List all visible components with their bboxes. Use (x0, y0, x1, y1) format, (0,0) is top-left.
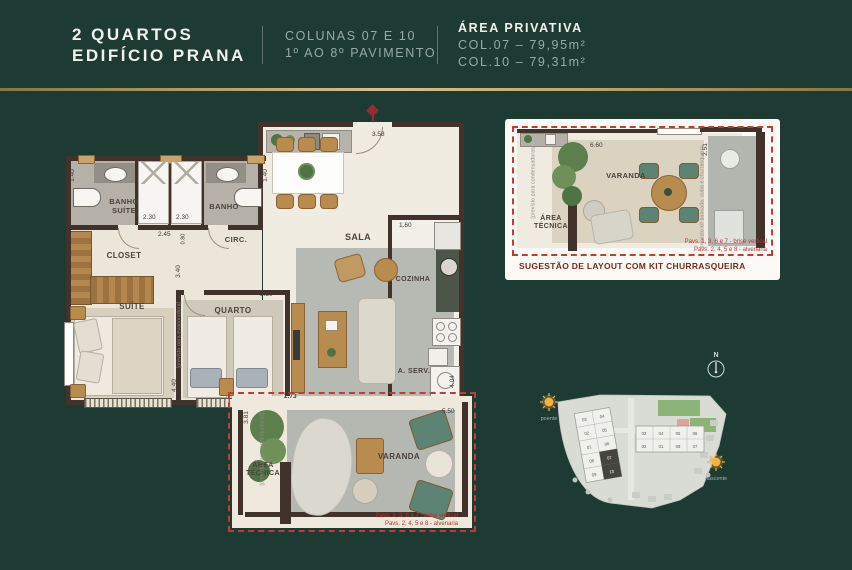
dim-label: 2.30 (176, 214, 189, 221)
pavement-note-line1: Pavs. 1, 3, 6 e 7 - brise vertical (601, 238, 767, 246)
chair-icon (276, 194, 294, 209)
burner-icon (448, 322, 457, 331)
burner-icon (436, 333, 445, 342)
plant-icon (327, 348, 336, 357)
fridge (434, 222, 461, 250)
chair-icon (298, 194, 316, 209)
header-columns-info: COLUNAS 07 E 10 1º AO 8º PAVIMENTO (285, 28, 436, 62)
gold-rule (0, 88, 852, 91)
chair-icon (298, 137, 316, 152)
header-divider (437, 26, 438, 64)
pavement-note-line1: Pavs. 1, 3, 6 e 7 - brise vertical (300, 512, 458, 520)
stove (432, 318, 461, 346)
sink (104, 167, 127, 182)
unit-number: 04 (659, 431, 664, 436)
tree-icon (586, 490, 591, 495)
compass-label: N (713, 352, 718, 359)
unit-number: 02 (642, 444, 647, 449)
nightstand (70, 384, 86, 398)
pillow (236, 368, 268, 388)
sun-east-label: nascente (705, 476, 727, 482)
chair-icon (320, 194, 338, 209)
tree-icon (573, 478, 578, 483)
dim-label: 2.50 (260, 291, 273, 298)
room-label-aserv: A. SERV. (392, 368, 436, 376)
plant-icon (298, 163, 315, 180)
dim-label: 1.40 (69, 169, 76, 182)
pillow (76, 350, 105, 384)
dim-label: 4.40 (171, 379, 178, 392)
wall (176, 290, 184, 295)
sun-west-label: poente (541, 416, 558, 422)
wall (228, 225, 263, 230)
entrance-marker-icon (372, 115, 374, 121)
door (78, 155, 95, 164)
dim-label: 1.40 (262, 169, 269, 182)
lawn (658, 400, 700, 416)
burner-icon (436, 322, 445, 331)
door (247, 155, 265, 164)
unit-number: 06 (693, 431, 698, 436)
wall (138, 225, 208, 230)
closet-wardrobe (69, 231, 92, 305)
unit-number: 05 (676, 431, 681, 436)
site-building-right: 03 04 05 06 02 01 08 07 (636, 426, 704, 452)
varanda-dashed-outline (228, 392, 476, 532)
unit-number: 08 (676, 444, 681, 449)
room-label-circ: CIRC. (214, 236, 258, 245)
pillow (190, 368, 222, 388)
page-title-line2: EDIFÍCIO PRANA (72, 45, 246, 66)
site-plan: 03 04 02 05 01 06 08 07 09 10 03 04 05 0… (540, 340, 740, 520)
sink (216, 167, 239, 182)
room-label-quarto: QUARTO (210, 306, 256, 315)
unit-number: 07 (693, 444, 698, 449)
tv-icon (293, 330, 300, 360)
dim-label: 3.40 (175, 265, 182, 278)
room-label-sala: SALA (336, 232, 380, 242)
dim-label: 1.60 (399, 222, 412, 229)
wall (459, 122, 464, 400)
area-col10: COL.10 – 79,31m² (458, 54, 586, 71)
sofa (358, 298, 396, 384)
burner-icon (448, 333, 457, 342)
header: 2 QUARTOS EDIFÍCIO PRANA COLUNAS 07 E 10… (0, 0, 852, 88)
dim-label: 2.30 (143, 214, 156, 221)
layout-suggestion-panel: VARANDA ÁREA TÉCNICA 6.60 2.51 [previsto… (505, 119, 780, 280)
chair-icon (320, 137, 338, 152)
columns-line2: 1º AO 8º PAVIMENTO (285, 45, 436, 62)
nightstand (70, 306, 86, 320)
closet-wardrobe (90, 276, 154, 304)
room-label-banho-suite: BANHO SUÍTE (96, 198, 152, 215)
room-label-banho: BANHO (196, 203, 252, 212)
laundry-tank (428, 348, 448, 366)
pavement-note: Pavs. 1, 3, 6 e 7 - brise vertical Pavs.… (601, 238, 767, 254)
header-divider (262, 26, 263, 64)
annotation: [previsto para evaporadora] (176, 302, 182, 369)
room-label-closet: CLOSET (100, 251, 148, 260)
page: 2 QUARTOS EDIFÍCIO PRANA COLUNAS 07 E 10… (0, 0, 852, 570)
window (64, 322, 74, 386)
wall (285, 290, 290, 400)
columns-line1: COLUNAS 07 E 10 (285, 28, 436, 45)
detail-dashed-outline (512, 126, 773, 256)
duvet (112, 318, 162, 394)
pavement-note-line2: Pavs. 2, 4, 5 e 8 - alvenaria (601, 246, 767, 254)
page-title: 2 QUARTOS EDIFÍCIO PRANA (72, 24, 246, 66)
area-title: ÁREA PRIVATIVA (458, 20, 586, 37)
dim-label: 4.04 (449, 375, 456, 388)
header-area-info: ÁREA PRIVATIVA COL.07 – 79,95m² COL.10 –… (458, 20, 586, 71)
unit-number: 03 (642, 431, 647, 436)
brise-window (84, 398, 172, 408)
compass-icon: N (708, 352, 724, 377)
room-label-suite: SUÍTE (110, 302, 154, 311)
wall (392, 122, 464, 127)
page-title-line1: 2 QUARTOS (72, 24, 246, 45)
pavement-note: Pavs. 1, 3, 6 e 7 - brise vertical Pavs.… (300, 512, 458, 528)
dim-label: 0.80 (180, 234, 186, 245)
chair-icon (276, 137, 294, 152)
dim-label: 2.45 (158, 231, 171, 238)
sink (440, 258, 458, 276)
wall (262, 122, 353, 127)
area-col07: COL.07 – 79,95m² (458, 37, 586, 54)
wall (66, 225, 118, 230)
dim-label: 3.58 (372, 131, 385, 138)
pavement-note-line2: Pavs. 2, 4, 5 e 8 - alvenaria (300, 520, 458, 528)
detail-caption: SUGESTÃO DE LAYOUT COM KIT CHURRASQUEIRA (519, 261, 746, 271)
tree-icon (608, 498, 613, 503)
book-icon (325, 320, 338, 331)
room-label-cozinha: COZINHA (390, 276, 436, 284)
wall (388, 215, 459, 220)
unit-number: 01 (659, 444, 664, 449)
wall (204, 290, 290, 295)
path (628, 398, 634, 500)
sun-west-icon: poente (540, 393, 558, 422)
